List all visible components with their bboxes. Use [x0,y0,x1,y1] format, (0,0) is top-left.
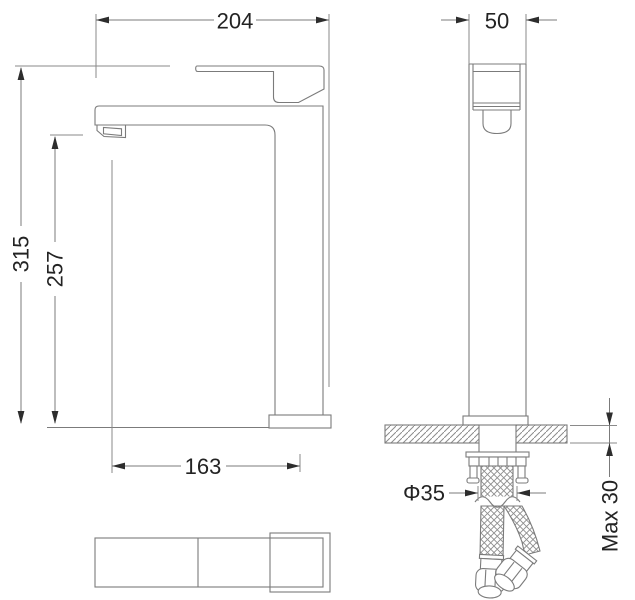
side-view [385,64,567,599]
arrowhead-bottom [52,411,59,424]
arrowhead-left [112,463,125,470]
arrowhead-up [606,443,613,456]
arrowhead-right [287,463,300,470]
arrowhead-right [517,490,530,497]
hose-upper [481,466,513,499]
dim-label-50: 50 [485,9,509,34]
dim-label-max30: Max 30 [598,480,623,552]
arrowhead-down [606,413,613,426]
lever-handle-outline [196,66,324,103]
dim-label-315: 315 [9,236,34,273]
hose-left [480,506,504,559]
countertop-right [516,425,567,443]
faucet-body-outline [95,106,323,415]
arrowhead-bottom [18,411,25,424]
base-plate [269,415,331,428]
dim-spout-reach: 163 [112,160,300,479]
arrowhead-right [526,17,539,24]
side-spout-tip [483,111,511,134]
supply-hoses [475,466,540,599]
dim-label-163: 163 [185,454,222,479]
dim-shank-diameter: Φ35 [403,481,546,506]
faucet-technical-drawing: 204 50 315 257 163 [0,0,635,600]
hose-right [504,506,540,555]
plan-body [95,538,323,587]
drawing-canvas: 204 50 315 257 163 [0,0,635,600]
arrowhead-top [18,67,25,80]
plan-view [95,533,330,592]
arrowhead-left [96,17,109,24]
arrowhead-left [456,17,469,24]
side-base-flange [463,416,528,425]
arrowhead-right [316,17,329,24]
arrowhead-left [465,490,478,497]
washer [466,452,529,457]
countertop-left [385,425,479,443]
dim-max-thickness: Max 30 [570,398,623,552]
dim-spout-height: 257 [43,135,84,424]
dim-body-width: 50 [441,9,557,65]
dim-label-phi35: Φ35 [403,481,445,506]
dim-label-204: 204 [217,9,254,34]
hose-break-mask [476,497,519,508]
arrowhead-top [52,136,59,149]
dim-label-257: 257 [43,251,68,288]
front-view [47,66,331,428]
